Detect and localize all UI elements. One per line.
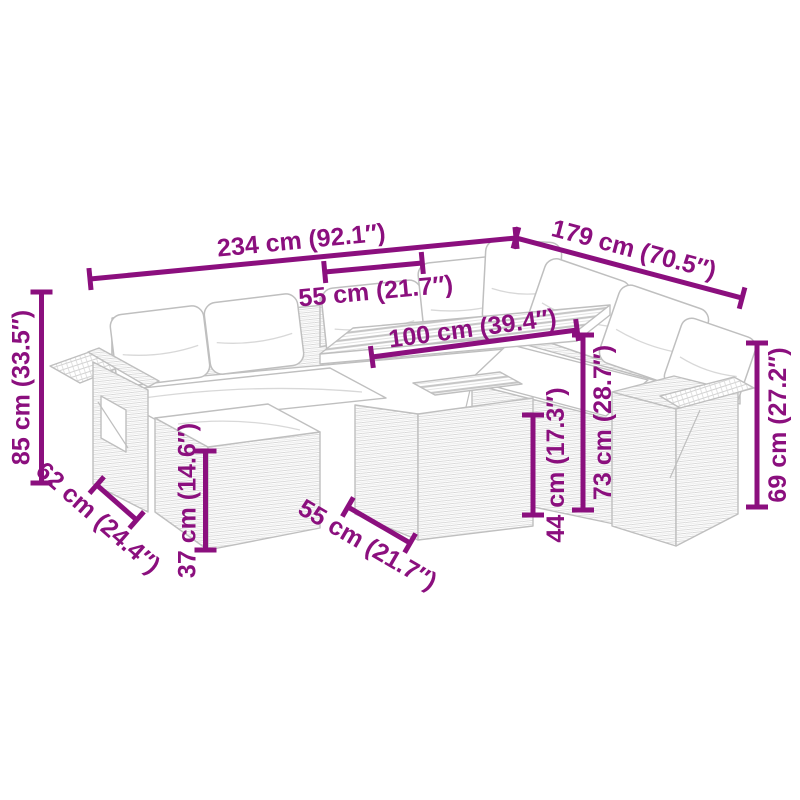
dimension-label: 234 cm (92.1″) (216, 219, 387, 263)
back-cushion (203, 293, 305, 376)
dimension-label: 44 cm (17.3″) (542, 387, 570, 542)
dimension-label: 37 cm (14.6″) (174, 423, 202, 578)
dimension-diagram: 234 cm (92.1″) 179 cm (70.5″) 55 cm (21.… (0, 0, 800, 800)
table-base-front (418, 398, 533, 540)
dimension-label: 73 cm (28.7″) (589, 345, 617, 500)
table-base-side (355, 405, 418, 540)
dimension-backrest-height: 85 cm (33.5″) (8, 292, 53, 483)
sofa-set-dimension-drawing: 234 cm (92.1″) 179 cm (70.5″) 55 cm (21.… (0, 0, 800, 800)
dimension-armrest-height: 69 cm (27.2″) (746, 343, 792, 507)
right-armrest-front (612, 392, 676, 546)
dimension-label: 69 cm (27.2″) (764, 347, 792, 502)
table-shelf-plank (413, 372, 522, 395)
right-armrest-side (676, 392, 738, 546)
dimension-label: 85 cm (33.5″) (8, 310, 36, 465)
footstool-front (208, 432, 320, 550)
back-cushion (109, 305, 211, 388)
